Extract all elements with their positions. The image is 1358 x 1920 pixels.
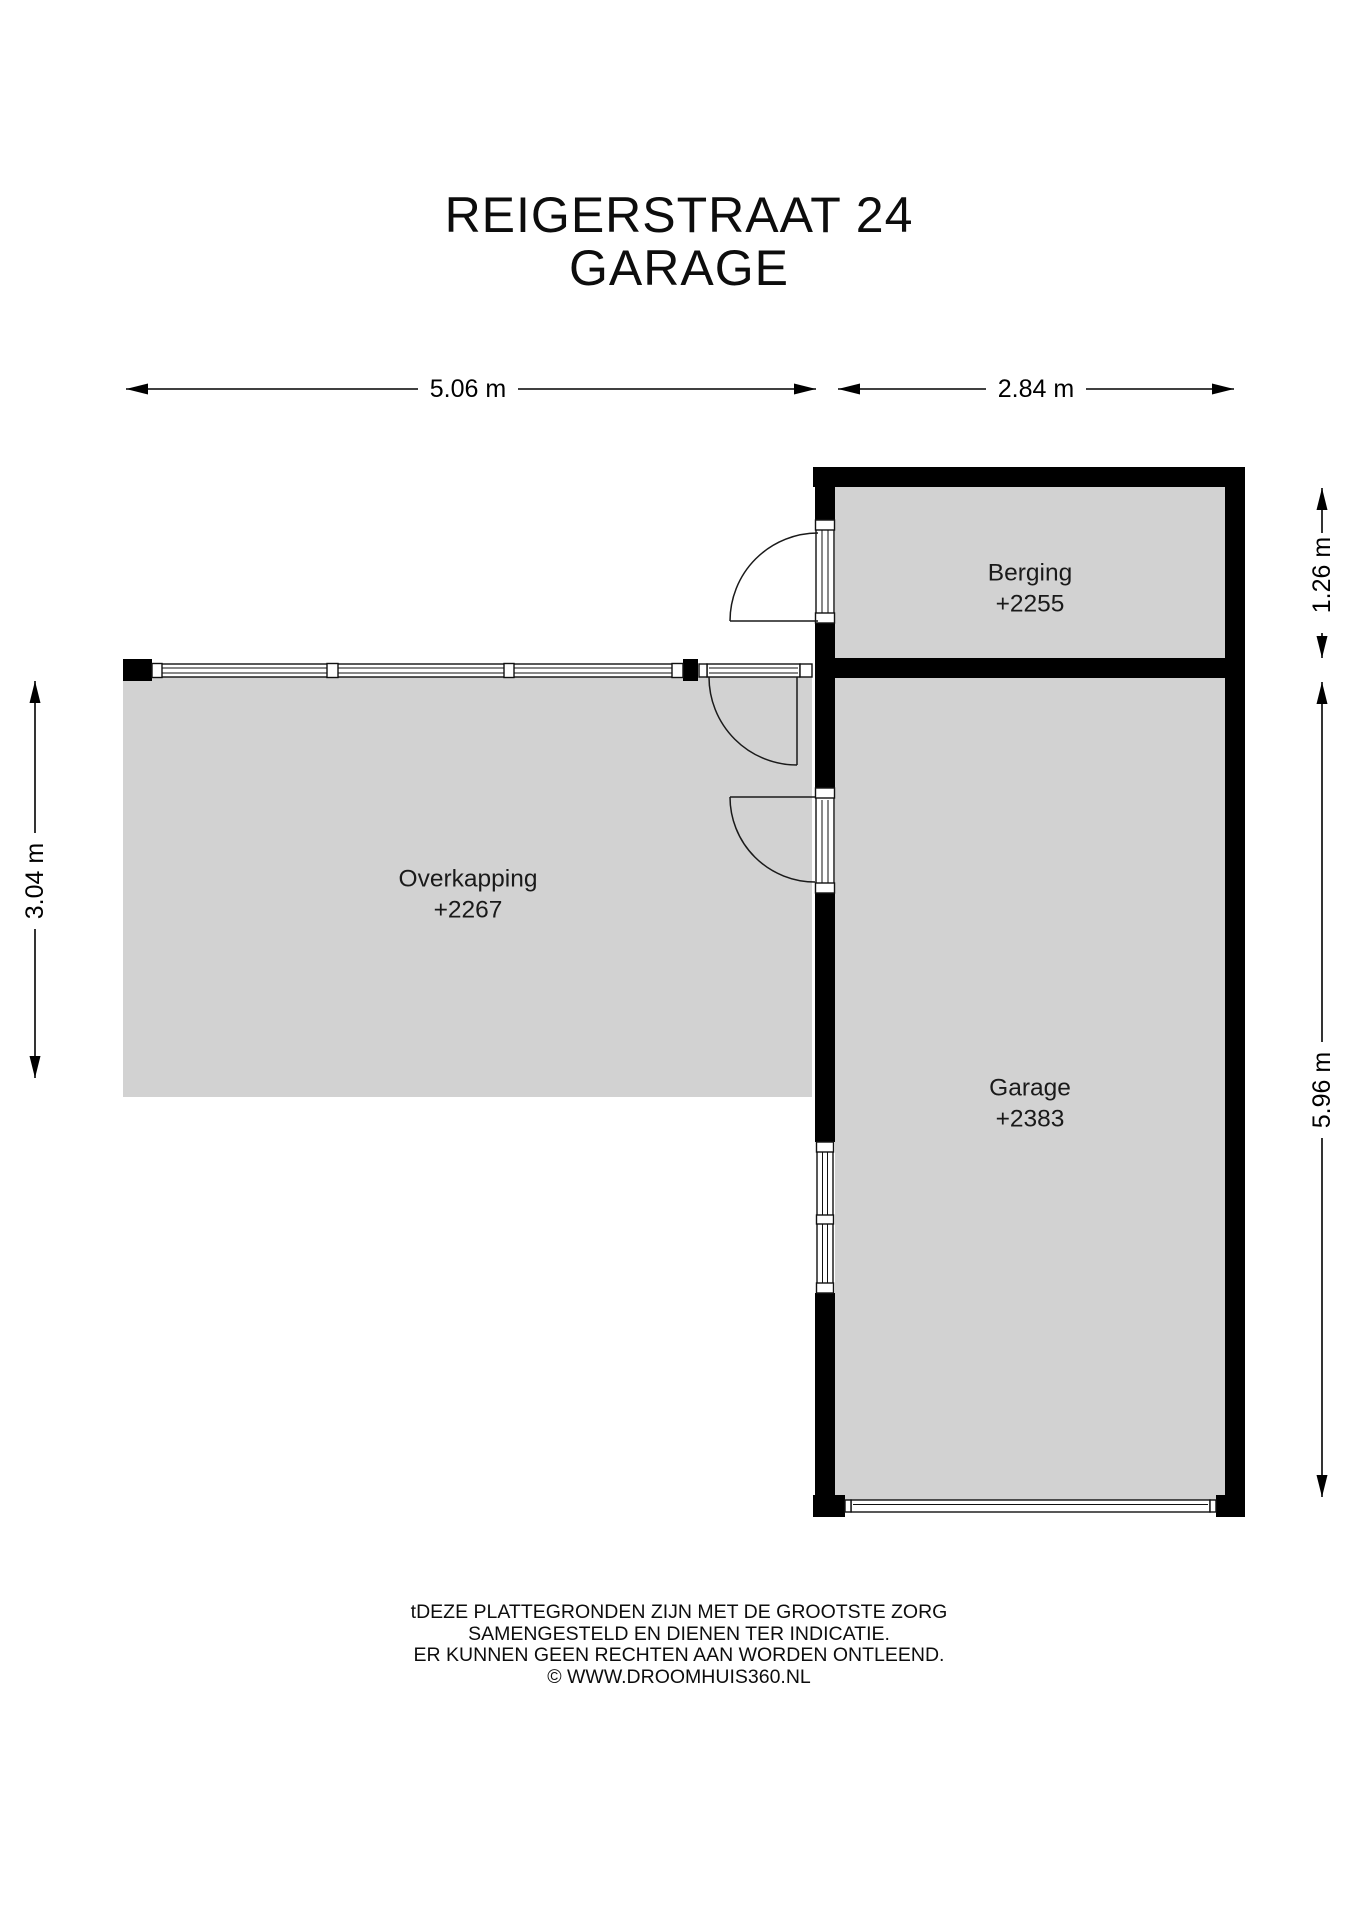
garage-elevation: +2383 xyxy=(996,1106,1065,1133)
dim-overkapping-width-label: 5.06 m xyxy=(430,375,506,403)
disclaimer-line-1: tDEZE PLATTEGRONDEN ZIJN MET DE GROOTSTE… xyxy=(0,1602,1358,1624)
dimension-overkapping-width: 5.06 m xyxy=(126,375,816,403)
band-door-post-2 xyxy=(800,664,812,677)
garage-overhead-door-post-left xyxy=(845,1500,851,1512)
berging-label: Berging xyxy=(988,560,1072,587)
arrowhead-down-icon xyxy=(1317,636,1328,658)
garage-side-door-frame xyxy=(816,788,834,893)
disclaimer-copyright: © WWW.DROOMHUIS360.NL xyxy=(0,1667,1358,1689)
garage-window-sill-top xyxy=(817,1142,834,1152)
arrowhead-left-icon xyxy=(126,384,148,395)
garage-side-door-sill-bottom xyxy=(816,883,835,893)
overkapping-window-band xyxy=(152,664,683,678)
dimension-berging-depth: 1.26 m xyxy=(1308,488,1336,658)
band-door-post-1 xyxy=(699,664,707,677)
garage-overhead-door-post-right xyxy=(1210,1500,1216,1512)
window-band-post-2 xyxy=(672,664,683,678)
garage-overhead-door-band xyxy=(851,1500,1210,1512)
garage-label: Garage xyxy=(989,1075,1071,1102)
floorplan-page: REIGERSTRAAT 24 GARAGE xyxy=(0,0,1358,1920)
wall-left-seg1 xyxy=(815,467,835,520)
window-band-post-1 xyxy=(152,664,162,678)
band-door-frame xyxy=(707,664,800,677)
berging-door-frame xyxy=(816,520,834,623)
garage-overhead-door xyxy=(845,1500,1216,1512)
berging-door-sill-bottom xyxy=(816,613,835,623)
wall-divider-berging-garage xyxy=(815,658,1225,678)
arrowhead-right-icon xyxy=(1212,384,1234,395)
arrowhead-up-icon xyxy=(1317,682,1328,704)
garage-side-door-sill-top xyxy=(816,788,835,798)
berging-door-sill-top xyxy=(816,520,835,530)
window-band xyxy=(152,664,683,677)
garage-window-sill-bottom xyxy=(817,1283,834,1293)
arrowhead-up-icon xyxy=(30,681,41,703)
overkapping-post-left xyxy=(123,659,152,681)
floor-fills xyxy=(123,487,1225,1500)
disclaimer: tDEZE PLATTEGRONDEN ZIJN MET DE GROOTSTE… xyxy=(0,1602,1358,1688)
wall-top xyxy=(813,467,1245,487)
berging-door-swing-arc xyxy=(730,533,818,621)
wall-corner-bottom-left xyxy=(813,1495,845,1517)
arrowhead-up-icon xyxy=(1317,488,1328,510)
window-band-mullion-1 xyxy=(327,664,338,678)
garage-window xyxy=(817,1142,834,1293)
wall-left-seg4 xyxy=(815,1293,835,1495)
overkapping-post-right xyxy=(683,659,698,681)
arrowhead-down-icon xyxy=(30,1056,41,1078)
wall-left-seg2 xyxy=(815,623,835,788)
dimension-overkapping-depth: 3.04 m xyxy=(21,681,49,1078)
dimension-garage-depth: 5.96 m xyxy=(1308,682,1336,1497)
berging-elevation: +2255 xyxy=(996,591,1065,618)
arrowhead-right-icon xyxy=(794,384,816,395)
dim-overkapping-depth-label: 3.04 m xyxy=(21,843,49,919)
garage-window-mullion xyxy=(817,1215,834,1224)
dimension-garage-width: 2.84 m xyxy=(838,375,1234,403)
wall-left-seg3 xyxy=(815,893,835,1142)
dim-garage-depth-label: 5.96 m xyxy=(1308,1052,1336,1128)
overkapping-label: Overkapping xyxy=(399,866,538,893)
arrowhead-left-icon xyxy=(838,384,860,395)
overkapping-elevation: +2267 xyxy=(434,897,503,924)
berging-door xyxy=(730,520,835,623)
wall-right xyxy=(1225,467,1245,1517)
arrowhead-down-icon xyxy=(1317,1475,1328,1497)
wall-corner-bottom-right xyxy=(1216,1495,1245,1517)
dim-garage-width-label: 2.84 m xyxy=(998,375,1074,403)
disclaimer-line-3: ER KUNNEN GEEN RECHTEN AAN WORDEN ONTLEE… xyxy=(0,1645,1358,1667)
dim-berging-depth-label: 1.26 m xyxy=(1308,537,1336,613)
disclaimer-line-2: SAMENGESTELD EN DIENEN TER INDICATIE. xyxy=(0,1624,1358,1646)
window-band-mullion-2 xyxy=(504,664,514,678)
